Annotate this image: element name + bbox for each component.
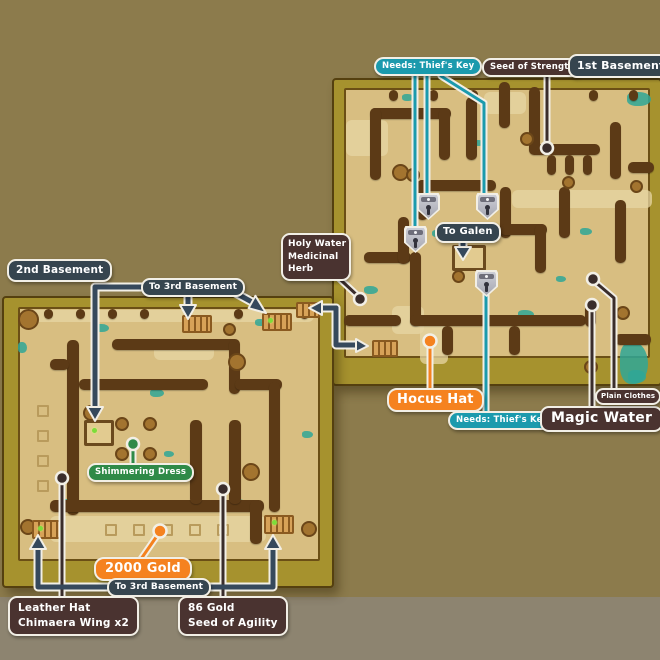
moss-patch (150, 389, 164, 397)
floor-tile-decor (37, 430, 49, 442)
pot-decor (630, 180, 643, 193)
floor-light-patch (512, 190, 652, 208)
staircase-icon (32, 520, 62, 539)
maze-wall (628, 162, 654, 173)
moss-patch (556, 276, 566, 282)
floor-tile-decor (37, 455, 49, 467)
maze-wall (389, 90, 398, 101)
maze-wall (112, 339, 238, 350)
maze-wall (589, 90, 598, 101)
maze-wall (439, 108, 450, 160)
staircase-icon (372, 340, 398, 357)
maze-wall (79, 379, 208, 390)
floor-tile-decor (37, 480, 49, 492)
maze-wall (442, 326, 453, 355)
label-leather-hat-line: Leather Hat (18, 601, 129, 616)
pot-decor (242, 463, 260, 481)
maze-wall (565, 155, 574, 175)
maze-wall (466, 97, 477, 160)
maze-wall (44, 309, 53, 319)
maze-wall (509, 326, 520, 355)
moss-patch (364, 286, 378, 294)
staircase-icon (182, 315, 212, 333)
maze-wall (370, 108, 381, 180)
floor-tile-decor (189, 524, 201, 536)
pot-decor (520, 132, 534, 146)
pot-decor (228, 353, 246, 371)
label-1st-basement: 1st Basement (568, 54, 660, 78)
staircase-icon (264, 515, 294, 534)
maze-wall (629, 90, 638, 101)
label-seed-of-agility-line: Seed of Agility (188, 616, 278, 631)
sparkle-icon (268, 318, 273, 323)
maze-wall (50, 359, 69, 370)
label-2nd-basement: 2nd Basement (7, 259, 112, 282)
label-leather-hat-chimaera-wing: Leather Hat Chimaera Wing x2 (8, 596, 139, 636)
sparkle-icon (272, 520, 277, 525)
pot-decor (18, 309, 39, 330)
label-to-galen: To Galen (435, 222, 501, 243)
pot-decor (301, 521, 317, 537)
moss-patch (95, 324, 109, 332)
label-shimmering-dress: Shimmering Dress (87, 463, 194, 482)
floor-light-patch (346, 120, 388, 156)
maze-wall (429, 90, 438, 101)
maze-wall (585, 304, 596, 327)
floor-tile-decor (133, 524, 145, 536)
pot-decor (223, 323, 236, 336)
label-medicinal-herb-line: Medicinal Herb (288, 251, 344, 276)
pot-decor (584, 360, 598, 374)
maze-wall (615, 334, 651, 345)
maze-wall (547, 155, 556, 175)
floor-tile-decor (105, 524, 117, 536)
maze-wall (583, 155, 592, 175)
pot-decor (115, 417, 129, 431)
label-needs-thiefs-key-top: Needs: Thief's Key (374, 57, 482, 76)
label-holy-water-line: Holy Water (288, 238, 344, 251)
maze-wall (234, 309, 243, 319)
maze-wall (140, 309, 149, 319)
sparkle-icon (92, 428, 97, 433)
pot-decor (452, 270, 465, 283)
maze-wall (76, 309, 85, 319)
floor-tile-decor (37, 405, 49, 417)
staircase-icon (296, 302, 320, 318)
staircase-icon (262, 313, 292, 331)
maze-wall (535, 224, 546, 273)
maze-wall (410, 315, 586, 326)
moss-patch (18, 342, 27, 353)
moss-patch (302, 431, 313, 438)
map-2nd-basement (2, 296, 334, 588)
pot-decor (115, 447, 129, 461)
maze-wall (610, 122, 621, 179)
maze-wall (108, 309, 117, 319)
moss-patch (402, 94, 414, 101)
floor-light-patch (50, 516, 266, 542)
label-86-gold-line: 86 Gold (188, 601, 278, 616)
label-hocus-hat: Hocus Hat (387, 388, 484, 412)
label-to-3rd-basement-bottom: To 3rd Basement (107, 578, 211, 597)
maze-wall (269, 382, 280, 512)
moss-patch (628, 370, 646, 383)
floor-tile-decor (161, 524, 173, 536)
maze-wall (499, 82, 510, 128)
label-chimaera-wing-line: Chimaera Wing x2 (18, 616, 129, 631)
pot-decor (616, 306, 630, 320)
pot-decor (143, 417, 157, 431)
sparkle-icon (38, 526, 43, 531)
label-magic-water: Magic Water (540, 406, 660, 432)
label-plain-clothes: Plain Clothes (595, 388, 660, 405)
maze-wall (417, 180, 496, 191)
moss-patch (580, 228, 592, 235)
maze-wall (469, 90, 478, 101)
dungeon-map-guide: Needs: Thief's Key Seed of Strength 1st … (0, 0, 660, 660)
maze-wall (344, 315, 401, 326)
pot-decor (406, 168, 420, 182)
pot-decor (562, 176, 575, 189)
floor-tile-decor (217, 524, 229, 536)
maze-wall (229, 420, 241, 504)
moss-patch (164, 451, 174, 457)
maze-wall (190, 420, 202, 504)
pot-decor (143, 447, 157, 461)
staircase-icon (452, 245, 486, 271)
maze-wall (529, 144, 600, 155)
maze-wall (559, 187, 570, 238)
staircase-icon (84, 420, 114, 446)
maze-wall (615, 200, 626, 263)
pot-decor (83, 405, 99, 421)
label-to-3rd-basement-top: To 3rd Basement (141, 278, 245, 297)
maze-wall (250, 500, 262, 544)
label-86-gold-seed-of-agility: 86 Gold Seed of Agility (178, 596, 288, 636)
label-holy-water-medicinal-herb: Holy Water Medicinal Herb (281, 233, 351, 281)
